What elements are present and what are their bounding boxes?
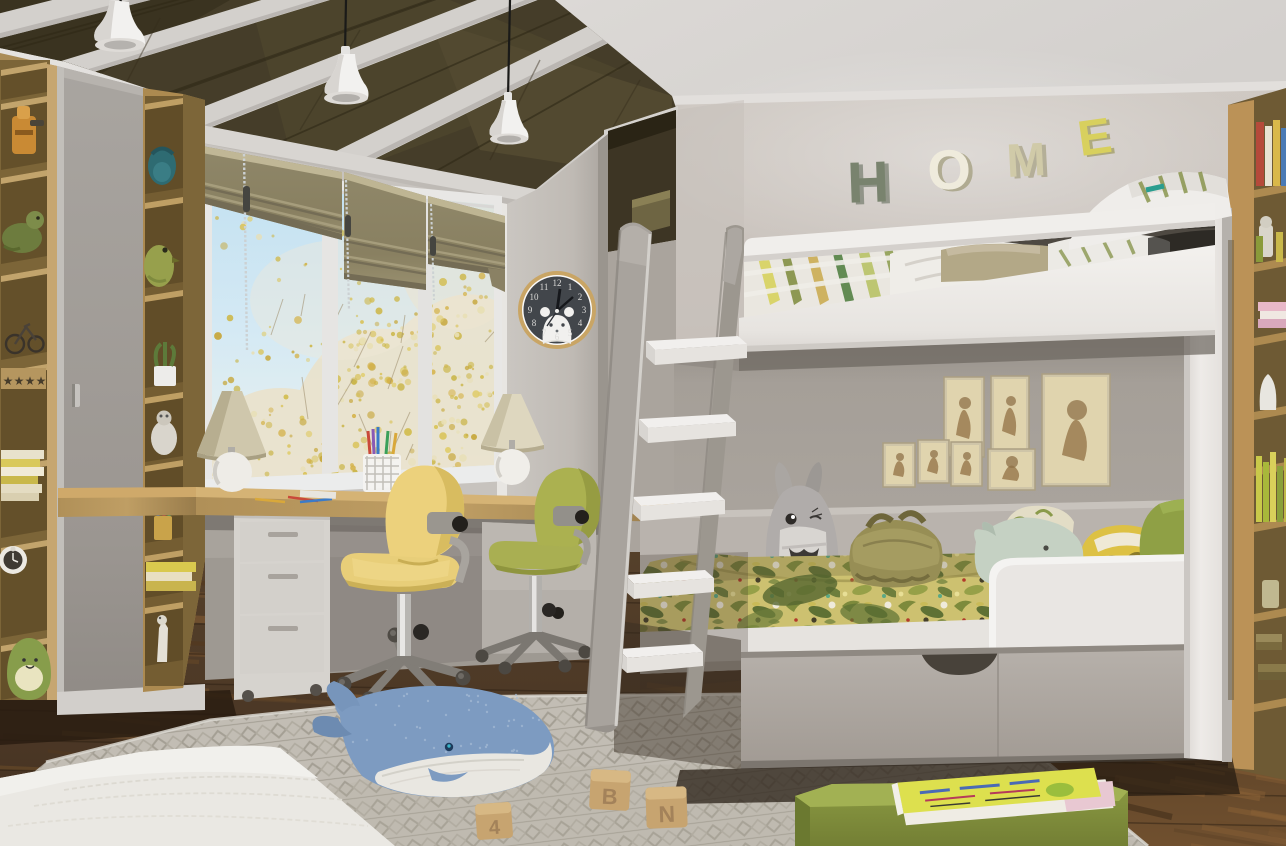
svg-text:★: ★: [14, 374, 25, 388]
svg-text:6: 6: [555, 332, 560, 342]
svg-text:8: 8: [532, 318, 537, 328]
svg-text:10: 10: [530, 292, 540, 302]
svg-text:2: 2: [578, 292, 583, 302]
svg-text:M: M: [1005, 132, 1047, 187]
svg-text:3: 3: [582, 305, 587, 315]
svg-text:O: O: [926, 137, 972, 201]
svg-text:5: 5: [568, 328, 573, 338]
svg-text:4: 4: [578, 318, 583, 328]
svg-text:12: 12: [553, 278, 562, 288]
svg-text:9: 9: [528, 305, 533, 315]
svg-text:7: 7: [542, 328, 547, 338]
svg-text:★: ★: [3, 374, 14, 388]
svg-text:★: ★: [36, 374, 47, 388]
svg-text:N: N: [658, 801, 676, 828]
svg-text:1: 1: [568, 282, 573, 292]
svg-text:11: 11: [540, 282, 549, 292]
svg-text:★: ★: [25, 374, 36, 388]
svg-text:B: B: [601, 784, 618, 810]
svg-text:H: H: [846, 149, 890, 215]
